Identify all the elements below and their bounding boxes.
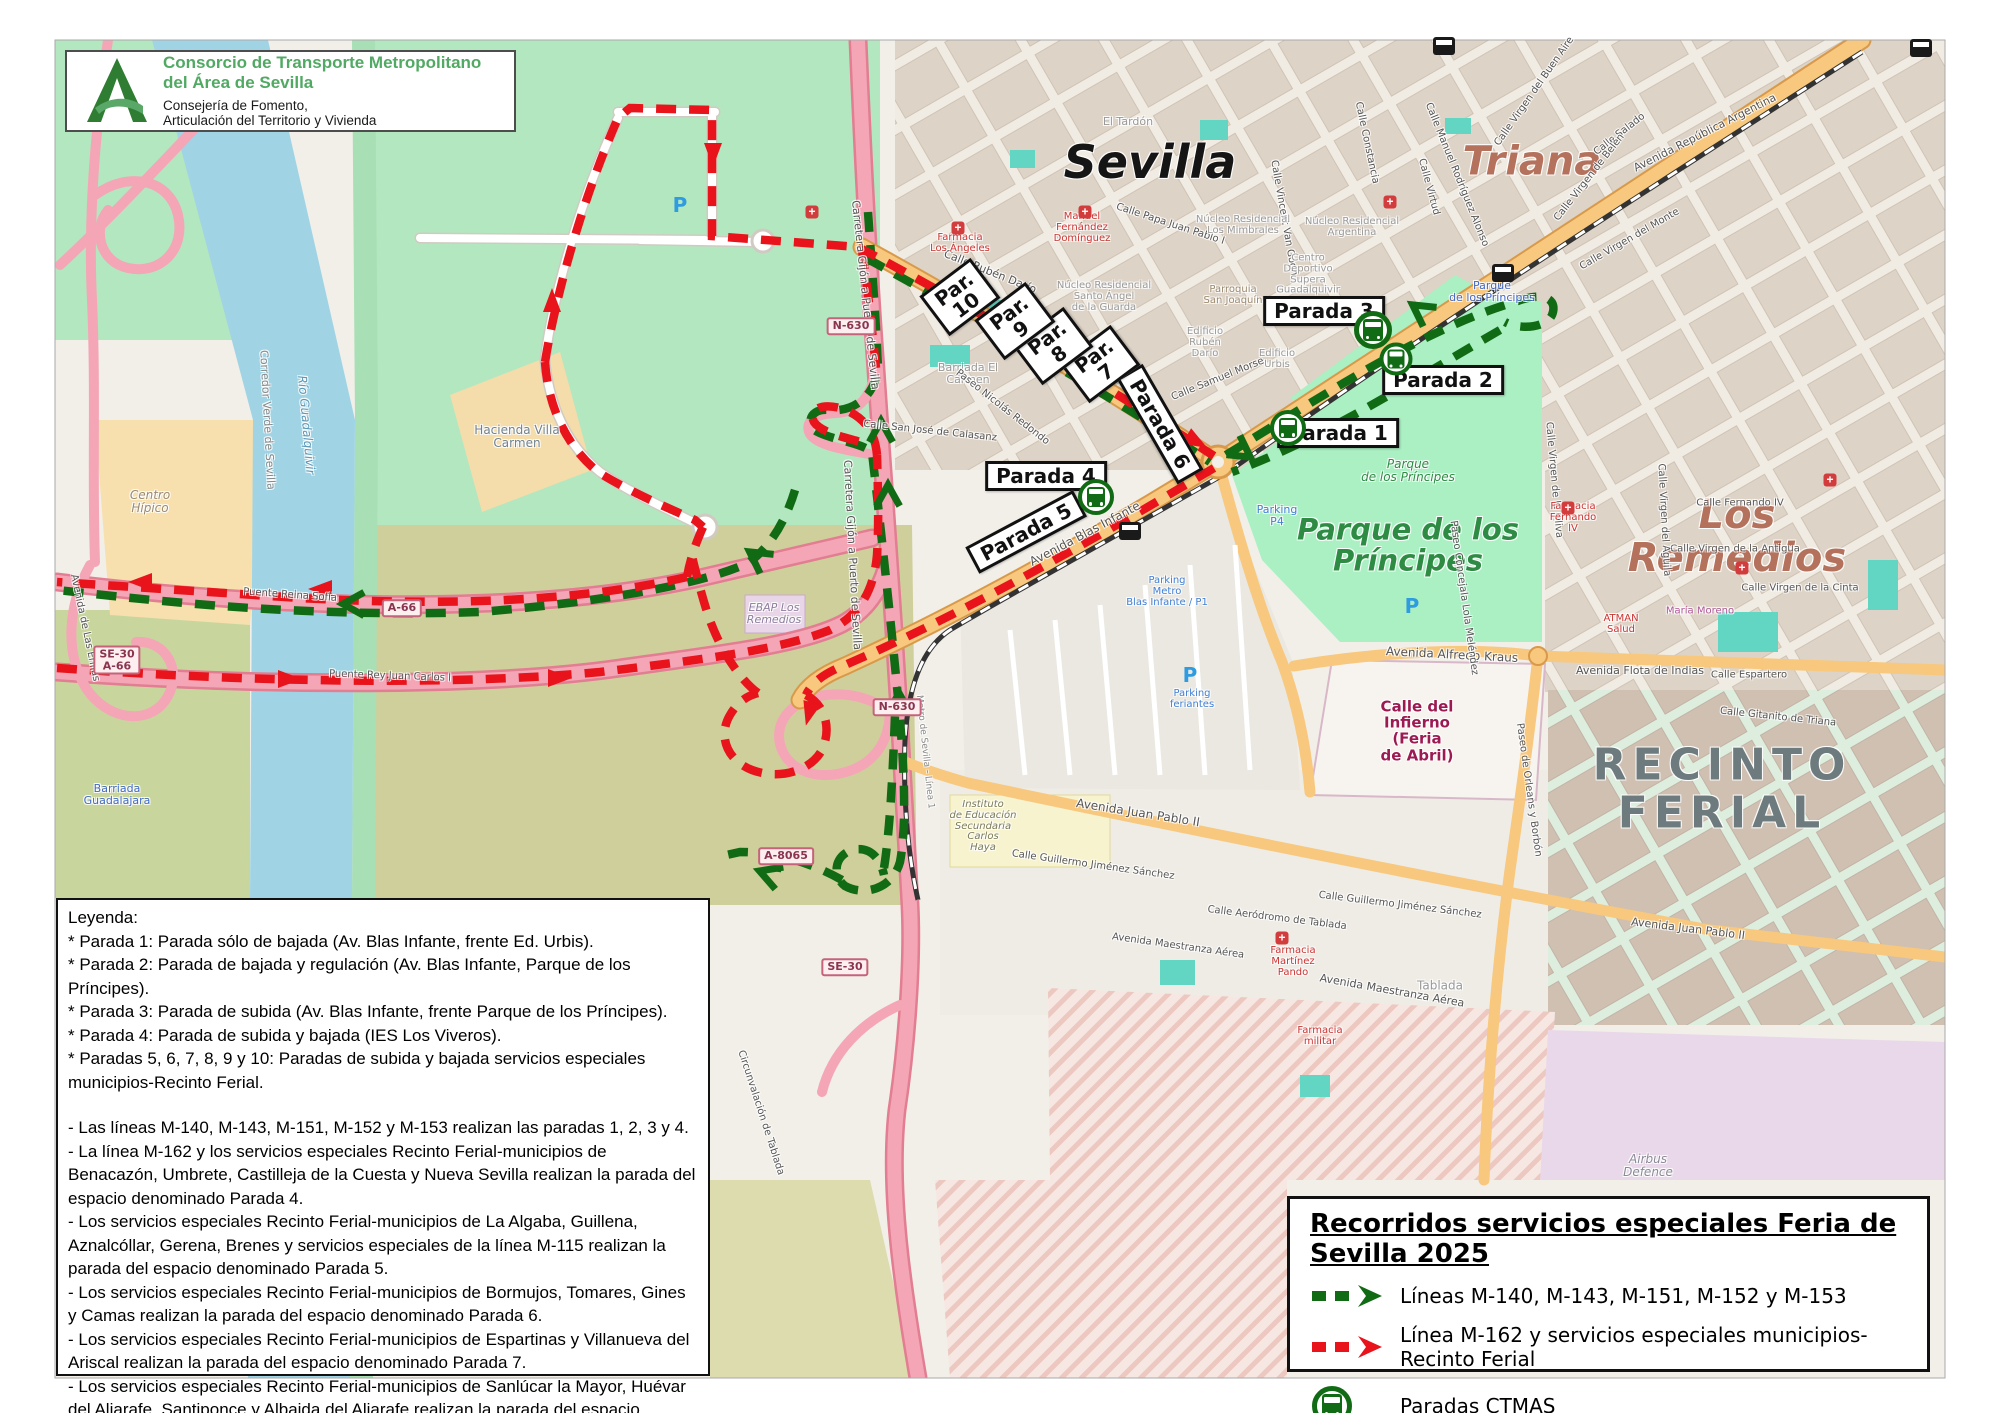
route-legend-item: Líneas M-140, M-143, M-151, M-152 y M-15… <box>1310 1282 1907 1310</box>
leyenda-parada-line: * Parada 1: Parada sólo de bajada (Av. B… <box>68 930 698 954</box>
leyenda-servicios-list: - Las líneas M-140, M-143, M-151, M-152 … <box>68 1116 698 1413</box>
route-legend-item: Línea M-162 y servicios especiales munic… <box>1310 1323 1907 1371</box>
route-legend-title: Recorridos servicios especiales Feria de… <box>1310 1209 1907 1269</box>
map-label: Hacienda Villa Carmen <box>474 424 559 450</box>
map-label: Parque de los Príncipes <box>1449 280 1535 304</box>
map-label: Circunvalación de Tablada <box>735 1049 786 1177</box>
leyenda-servicio-line: - Los servicios especiales Recinto Feria… <box>68 1375 698 1413</box>
map-label: Carretera Gijón a Puerto de Sevilla <box>841 460 863 651</box>
pharmacy-icon: + <box>806 206 819 219</box>
bus-stop-icon <box>1078 479 1114 515</box>
leyenda-servicio-line: - Los servicios especiales Recinto Feria… <box>68 1210 698 1281</box>
bus-wheel <box>1390 364 1393 367</box>
map-label: Calle Virgen de la Cinta <box>1741 584 1858 595</box>
leyenda-parada-line: * Parada 4: Parada de subida y bajada (I… <box>68 1024 698 1048</box>
bus-wheel <box>1377 336 1380 340</box>
map-label: Avenida Maestranza Aérea <box>1111 932 1244 961</box>
map-label: Calle Fernando IV <box>1696 499 1784 510</box>
parada-label: Parada 6 <box>1117 364 1204 484</box>
map-label: Parking Metro Blas Infante / P1 <box>1126 576 1208 608</box>
bus-windshield <box>1365 322 1381 328</box>
road-shield: A-66 <box>382 599 422 617</box>
map-label: Parque de los Príncipes <box>1297 515 1519 578</box>
pharmacy-icon: + <box>1562 502 1575 515</box>
transit-window <box>1495 267 1512 272</box>
leyenda-title: Leyenda: <box>68 906 698 930</box>
map-label: Calle Guillermo Jiménez Sánchez <box>1011 849 1175 883</box>
map-label: Farmacia militar <box>1297 1026 1342 1048</box>
route-legend-box: Recorridos servicios especiales Feria de… <box>1287 1196 1930 1372</box>
map-label: Triana <box>1463 140 1602 183</box>
road-shield: SE-30 <box>821 958 868 976</box>
header-subtitle-line1: Consejería de Fomento, <box>163 98 308 113</box>
bus-wheel <box>1399 364 1402 367</box>
map-label: Calle Virgen de la Antigua <box>1670 545 1800 556</box>
parking-icon: P <box>1405 594 1420 618</box>
ctmas-stop-legend-icon <box>1310 1384 1400 1413</box>
bus-glyph <box>1087 487 1106 508</box>
map-label: EBAP Los Remedios <box>747 602 801 626</box>
leyenda-parada-line: * Paradas 5, 6, 7, 8, 9 y 10: Paradas de… <box>68 1047 698 1094</box>
map-label: ATMAN Salud <box>1603 614 1638 636</box>
transit-window <box>1122 525 1139 530</box>
leyenda-servicio-line: - La línea M-162 y los servicios especia… <box>68 1140 698 1211</box>
pharmacy-icon: + <box>1276 932 1289 945</box>
bus-stop-icon <box>1270 410 1306 446</box>
map-label: Parking feriantes <box>1170 689 1214 711</box>
map-label: Calle Virtud <box>1415 158 1440 217</box>
map-label: Calle Samuel Morse <box>1170 356 1266 403</box>
map-label: Puente Rey Juan Carlos I <box>329 669 451 684</box>
map-label: Calle Virgen del Monte <box>1578 207 1681 273</box>
map-label: Parque de los Príncipes <box>1361 458 1455 484</box>
map-label: Calle Constancia <box>1352 101 1380 185</box>
leyenda-servicio-line: - Los servicios especiales Recinto Feria… <box>68 1281 698 1328</box>
map-label: Airbus Defence <box>1623 1153 1673 1179</box>
bus-wheel <box>1292 433 1295 436</box>
route-dash-arrow-icon <box>1310 1333 1400 1361</box>
map-label: Parking P4 <box>1257 504 1298 528</box>
transit-station-icon <box>1492 264 1514 282</box>
header-title-line2: del Área de Sevilla <box>163 73 313 92</box>
road-shield: N-630 <box>827 317 876 335</box>
pharmacy-icon: + <box>952 222 965 235</box>
route-legend-item-label: Líneas M-140, M-143, M-151, M-152 y M-15… <box>1400 1284 1847 1308</box>
map-label: Tablada <box>1417 980 1463 993</box>
transit-station-icon <box>1433 37 1455 55</box>
route-legend-item: Paradas CTMAS <box>1310 1384 1907 1413</box>
map-label: Avenida Juan Pablo II <box>1075 797 1200 829</box>
map-label: Avenida Flota de Indias <box>1576 665 1704 677</box>
bus-windshield <box>1389 352 1403 357</box>
pharmacy-icon: + <box>1736 562 1749 575</box>
map-label: Calle Virgen del Buen Aire <box>1493 36 1577 149</box>
map-label: Centro Deportivo Supera Guadalquivir <box>1276 253 1340 296</box>
map-label: Río Guadalquivir <box>295 375 317 475</box>
map-label: Farmacia Los Ángeles <box>930 233 990 255</box>
parking-icon: P <box>673 193 688 217</box>
bus-glyph <box>1387 349 1404 368</box>
road-shield: A-8065 <box>758 847 814 865</box>
transit-window <box>1913 42 1930 47</box>
pharmacy-icon: + <box>1824 474 1837 487</box>
transit-window <box>1436 40 1453 45</box>
map-label: Barriada Guadalajara <box>84 783 151 807</box>
map-label: Calle San José de Calasanz <box>863 420 998 445</box>
map-label: Edificio Rubén Darío <box>1187 327 1223 359</box>
map-label: Farmacia Martínez Pando <box>1270 946 1315 978</box>
route-legend-items: Líneas M-140, M-143, M-151, M-152 y M-15… <box>1310 1282 1907 1413</box>
pharmacy-icon: + <box>1079 206 1092 219</box>
parking-icon: P <box>1183 663 1198 687</box>
map-label: Avenida Alfredo Kraus <box>1386 645 1519 665</box>
map-label: María Moreno <box>1666 607 1734 618</box>
route-legend-item-label: Paradas CTMAS <box>1400 1394 1555 1413</box>
map-label: Sevilla <box>1064 138 1237 188</box>
map-label: Calle Espartero <box>1711 671 1787 682</box>
map-label: Calle Gitanito de Triana <box>1719 707 1836 730</box>
header-subtitle-line2: Articulación del Territorio y Vivienda <box>163 113 376 128</box>
map-label: RECINTO FERIAL <box>1583 741 1861 836</box>
leyenda-parada-line: * Parada 2: Parada de bajada y regulació… <box>68 953 698 1000</box>
map-label: Parroquia San Joaquín <box>1204 285 1263 307</box>
road-shield: N-630 <box>873 698 922 716</box>
map-label: Instituto de Educación Secundaria Carlos… <box>949 800 1016 854</box>
route-dash-arrow-icon <box>1310 1282 1400 1310</box>
bus-windshield <box>1324 1397 1341 1403</box>
leyenda-paradas-list: * Parada 1: Parada sólo de bajada (Av. B… <box>68 930 698 1095</box>
transit-station-icon <box>1910 39 1932 57</box>
bus-wheel <box>1100 502 1103 505</box>
map-label: Centro Hípico <box>130 489 170 515</box>
header-box: Consorcio de Transporte Metropolitano de… <box>65 50 516 132</box>
bus-glyph <box>1279 418 1298 439</box>
map-label: Calle Guillermo Jiménez Sánchez <box>1318 891 1482 922</box>
pharmacy-icon: + <box>1384 196 1397 209</box>
route-legend-item-label: Línea M-162 y servicios especiales munic… <box>1400 1323 1907 1371</box>
bus-glyph <box>1363 319 1383 341</box>
map-label: El Tardón <box>1103 116 1153 128</box>
bus-stop-icon <box>1312 1386 1352 1413</box>
map-label: Núcleo Residencial Santo Ángel de la Gua… <box>1057 281 1151 313</box>
feria-route-map-poster: SevillaTrianaLos RemediosRECINTO FERIALP… <box>0 0 2000 1413</box>
map-label: Paseo de Orleans y Borbón <box>1513 722 1542 857</box>
map-label: Calle Aeródromo de Tablada <box>1207 905 1347 933</box>
leyenda-servicio-line: - Las líneas M-140, M-143, M-151, M-152 … <box>68 1116 698 1140</box>
leyenda-box: Leyenda: * Parada 1: Parada sólo de baja… <box>56 898 710 1376</box>
leyenda-servicio-line: - Los servicios especiales Recinto Feria… <box>68 1328 698 1375</box>
map-label: Núcleo Residencial Los Mimbrales <box>1196 215 1290 237</box>
map-label: Núcleo Residencial Argentina <box>1305 217 1399 239</box>
leyenda-parada-line: * Parada 3: Parada de subida (Av. Blas I… <box>68 1000 698 1024</box>
junta-andalucia-logo-icon <box>81 56 153 126</box>
bus-glyph <box>1322 1394 1343 1413</box>
map-label: Puente Reina Sofía <box>243 587 337 604</box>
bus-windshield <box>1281 420 1296 425</box>
map-label: Calle del Infierno (Feria de Abril) <box>1380 699 1453 764</box>
bus-stop-icon <box>1354 311 1392 349</box>
bus-stop-icon <box>1380 343 1413 376</box>
bus-wheel <box>1281 433 1284 436</box>
map-label: Avenida Juan Pablo II <box>1630 916 1745 942</box>
transit-station-icon <box>1119 522 1141 540</box>
map-label: Corredor Verde de Sevilla <box>257 350 276 490</box>
bus-wheel <box>1089 502 1092 505</box>
header-title-line1: Consorcio de Transporte Metropolitano <box>163 53 481 72</box>
map-label: Avenida República Argentina <box>1632 92 1778 174</box>
map-label: Carretera Gijón a Puerto de Sevilla <box>849 200 881 391</box>
parada-label: Parada 5 <box>965 490 1087 574</box>
bus-windshield <box>1089 489 1104 494</box>
road-shield: SE-30 A-66 <box>93 645 140 674</box>
bus-wheel <box>1366 336 1369 340</box>
map-label: Edificio Urbis <box>1259 349 1295 371</box>
